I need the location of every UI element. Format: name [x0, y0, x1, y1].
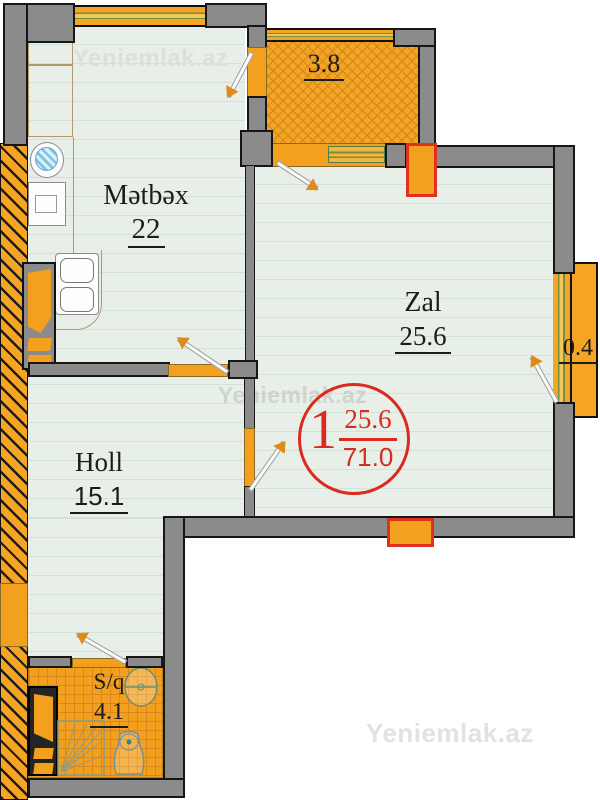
area-summary-badge: 1 25.6 71.0	[298, 383, 410, 495]
wall-segment	[3, 3, 28, 146]
shaft-duct-icon	[27, 338, 52, 351]
wall-segment	[247, 25, 267, 49]
living-area-value: 25.6	[337, 404, 399, 435]
wall-segment	[163, 516, 185, 798]
toilet-icon	[108, 728, 150, 776]
kitchen-cabinet	[28, 182, 66, 226]
balcony-top-window	[267, 28, 394, 42]
floor-plan: Yeniemlak.az Yeniemlak.az Yeniemlak.az	[0, 0, 600, 800]
wall-segment	[244, 378, 255, 430]
shower-icon	[57, 720, 105, 776]
wall-segment	[553, 145, 575, 274]
watermark-top: Yeniemlak.az	[73, 45, 228, 73]
hall-floor-upper	[28, 365, 245, 518]
shaft-duct-icon	[33, 748, 54, 759]
wall-segment	[247, 96, 267, 132]
room-count: 1	[309, 402, 337, 458]
kitchen-area: 22	[118, 214, 174, 244]
balcony-top-area: 3.8	[300, 50, 348, 77]
wall-segment	[418, 45, 436, 145]
kitchen-label: Mətbəx	[85, 181, 207, 210]
sink-bowl	[60, 258, 94, 283]
shaft-duct-icon	[34, 694, 53, 742]
heating-riser	[406, 143, 437, 197]
bathroom-label: S/q	[84, 670, 134, 694]
wall-segment	[28, 778, 185, 798]
balcony-right-area: 0.4	[556, 336, 600, 361]
living-room-area: 25.6	[390, 322, 456, 350]
wall-segment	[163, 516, 575, 538]
fraction-line	[339, 438, 397, 441]
total-area-value: 71.0	[337, 442, 399, 473]
vent-shaft	[22, 262, 56, 370]
wall-segment	[28, 362, 170, 377]
wall-segment	[245, 165, 255, 380]
watermark-bottom: Yeniemlak.az	[366, 718, 534, 749]
kitchen-window	[75, 5, 205, 27]
wall-segment	[240, 130, 273, 167]
shaft-duct-icon	[33, 763, 54, 774]
entrance-door	[0, 583, 28, 647]
wall-segment	[228, 360, 258, 379]
living-room-label: Zal	[390, 288, 456, 317]
living-room-window	[328, 146, 385, 163]
wall-segment	[28, 656, 72, 668]
heating-riser	[387, 518, 434, 547]
hall-area: 15.1	[62, 483, 136, 510]
shaft-duct-icon	[28, 269, 51, 333]
bathroom-shaft	[28, 686, 58, 776]
bathroom-area: 4.1	[84, 700, 134, 725]
wall-segment	[126, 656, 163, 668]
wall-segment	[553, 402, 575, 518]
exterior-wall-left	[0, 143, 28, 800]
kitchen-hob	[30, 142, 64, 178]
kitchen-sink	[55, 253, 99, 315]
hall-label: Holl	[66, 448, 132, 476]
sink-bowl	[60, 287, 94, 312]
kitchen-counter	[28, 65, 73, 137]
hob-glass-icon	[35, 147, 58, 171]
